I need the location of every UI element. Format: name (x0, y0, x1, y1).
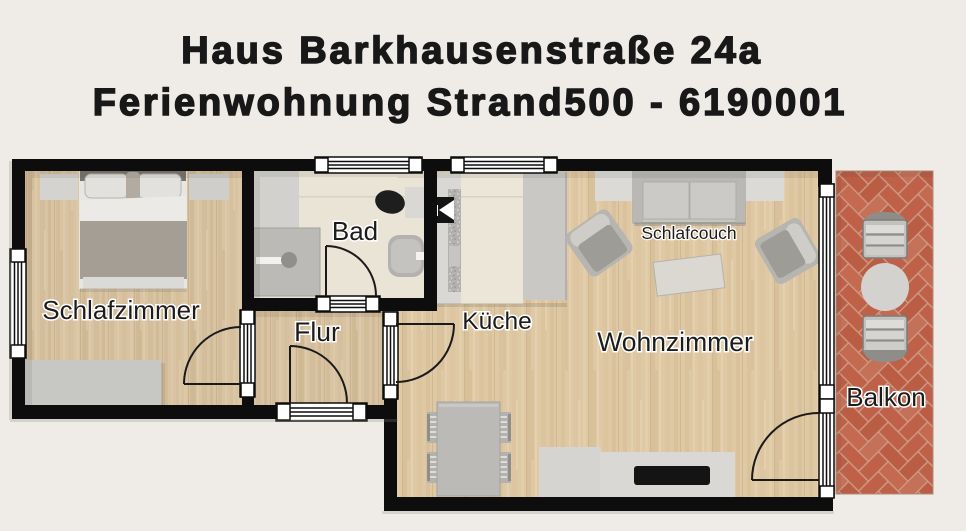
svg-text:Bad: Bad (332, 216, 378, 246)
svg-text:Küche: Küche (462, 308, 531, 335)
svg-text:Schlafcouch: Schlafcouch (641, 223, 736, 243)
svg-text:Haus Barkhausenstraße 24a: Haus Barkhausenstraße 24a (181, 30, 763, 72)
svg-text:Schlafzimmer: Schlafzimmer (42, 295, 200, 325)
svg-text:Flur: Flur (294, 317, 340, 347)
svg-text:Wohnzimmer: Wohnzimmer (597, 327, 753, 357)
svg-text:Ferienwohnung Strand500 - 6190: Ferienwohnung Strand500 - 6190001 (93, 82, 848, 124)
svg-text:Balkon: Balkon (846, 382, 926, 412)
